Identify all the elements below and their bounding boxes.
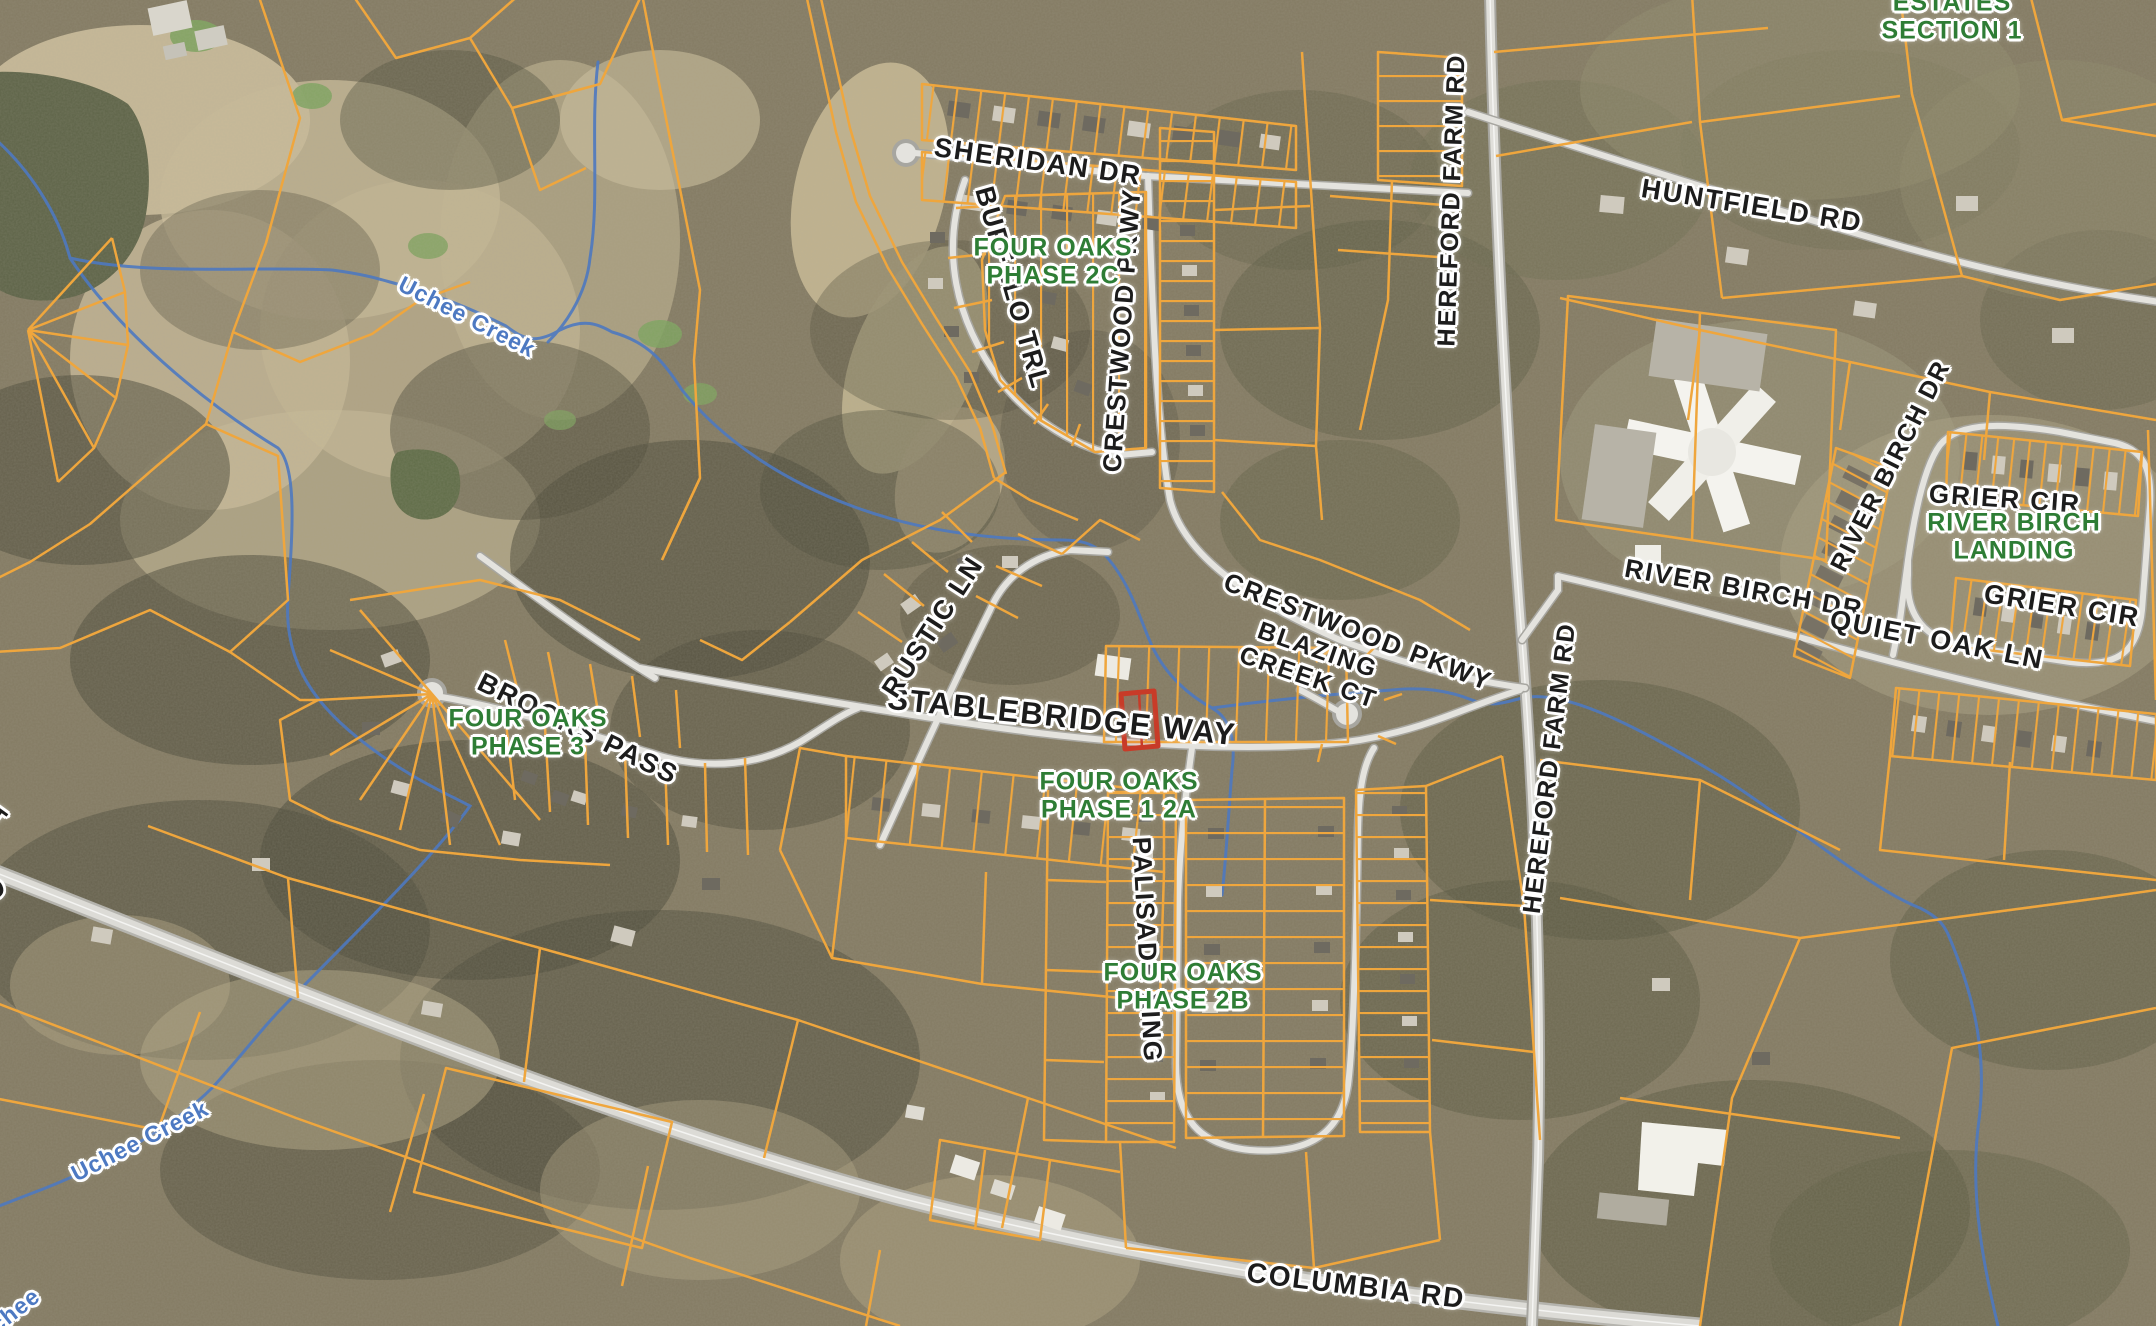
phase12a-line1: FOUR OAKS	[1040, 769, 1199, 797]
estates-line1: ESTATES	[1882, 0, 2023, 17]
phase2b-line1: FOUR OAKS	[1104, 960, 1263, 988]
river-birch-landing-line1: RIVER BIRCH	[1927, 510, 2101, 538]
subdivision-label-river-birch-landing: RIVER BIRCH LANDING	[1927, 510, 2101, 565]
phase12a-line2: PHASE 1 2A	[1040, 796, 1199, 824]
subdivision-label-four-oaks-phase-2b: FOUR OAKS PHASE 2B	[1104, 960, 1263, 1015]
subdivision-label-estates-section-1: ESTATES SECTION 1	[1882, 0, 2023, 45]
phase3-line1: FOUR OAKS	[449, 706, 608, 734]
subdivision-label-four-oaks-phase-1-2a: FOUR OAKS PHASE 1 2A	[1040, 769, 1199, 824]
phase2c-line2: PHASE 2C	[974, 262, 1133, 290]
river-birch-landing-line2: LANDING	[1927, 537, 2101, 565]
phase2b-line2: PHASE 2B	[1104, 987, 1263, 1015]
parcel-map-canvas[interactable]: SHERIDAN DR BUFFALO TRL CRESTWOOD PKWY C…	[0, 0, 2156, 1326]
subdivision-label-four-oaks-phase-3: FOUR OAKS PHASE 3	[449, 706, 608, 761]
map-graphics	[0, 0, 2156, 1326]
phase2c-line1: FOUR OAKS	[974, 235, 1133, 263]
phase3-line2: PHASE 3	[449, 733, 608, 761]
estates-line2: SECTION 1	[1882, 17, 2023, 45]
subdivision-label-four-oaks-phase-2c: FOUR OAKS PHASE 2C	[974, 235, 1133, 290]
